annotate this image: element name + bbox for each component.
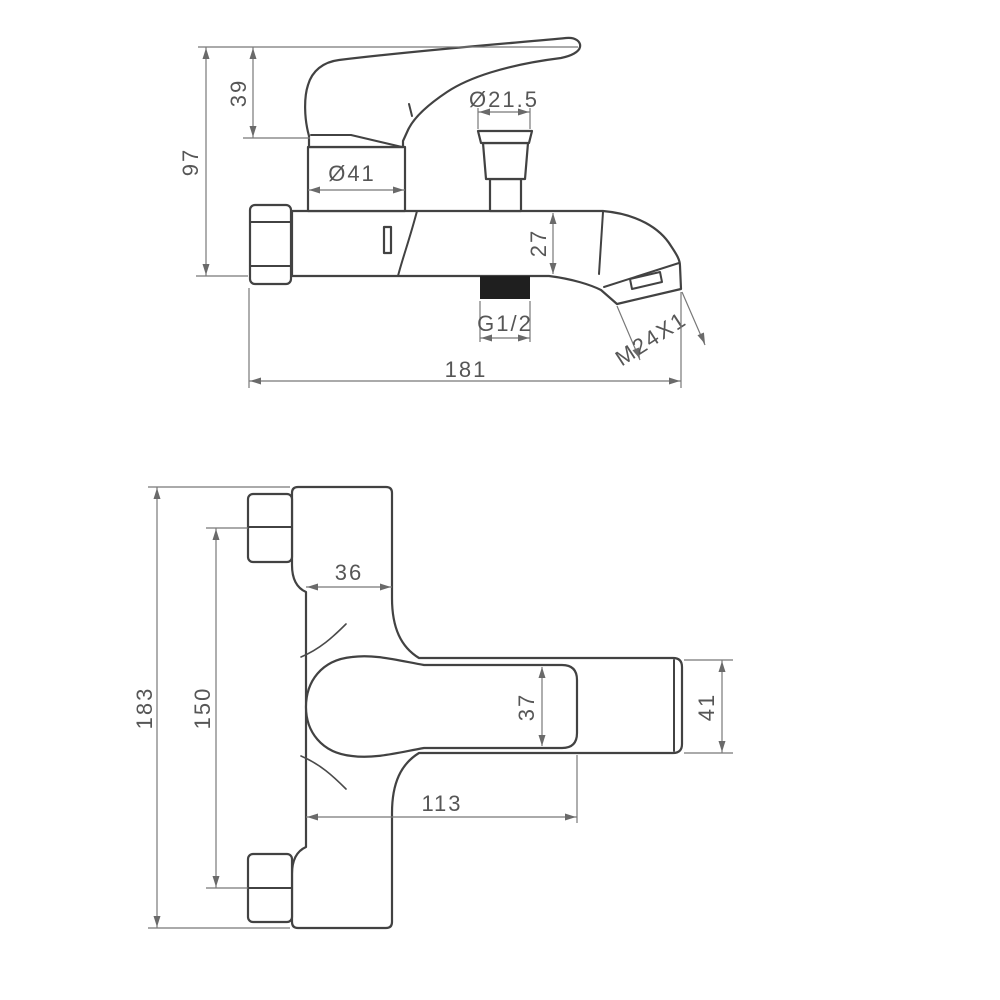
dim-150-label: 150: [190, 687, 215, 730]
dim-m24-label: M24X1: [611, 307, 691, 371]
dim-183-label: 183: [132, 687, 157, 730]
dim-215-label: Ø21.5: [469, 87, 539, 112]
dim-113-label: 113: [421, 791, 462, 816]
diverter-stem: [490, 179, 521, 211]
inlet-thread-block: [480, 276, 530, 299]
dim-41dia-label: Ø41: [328, 161, 376, 186]
hex-nut-side: [250, 205, 291, 284]
plan-view: 183 150 36 37 41 113: [132, 487, 733, 928]
dim-37-label: 37: [514, 693, 539, 721]
dim-41-label: 41: [694, 693, 719, 721]
dim-36-label: 36: [335, 560, 363, 585]
technical-drawing-page: 97 39 Ø41 Ø21.5 27 G1/2: [0, 0, 1000, 1000]
dim-181-label: 181: [445, 357, 488, 382]
side-elevation-view: 97 39 Ø41 Ø21.5 27 G1/2: [178, 38, 708, 388]
dim-39-label: 39: [226, 79, 251, 107]
diverter-cap: [478, 131, 532, 143]
dim-97-label: 97: [178, 148, 203, 176]
dim-27-label: 27: [526, 229, 551, 257]
body-clip-detail: [384, 227, 391, 253]
dim-g12-label: G1/2: [477, 311, 533, 336]
faucet-drawing-svg: 97 39 Ø41 Ø21.5 27 G1/2: [0, 0, 1000, 1000]
diverter-body: [483, 143, 528, 179]
